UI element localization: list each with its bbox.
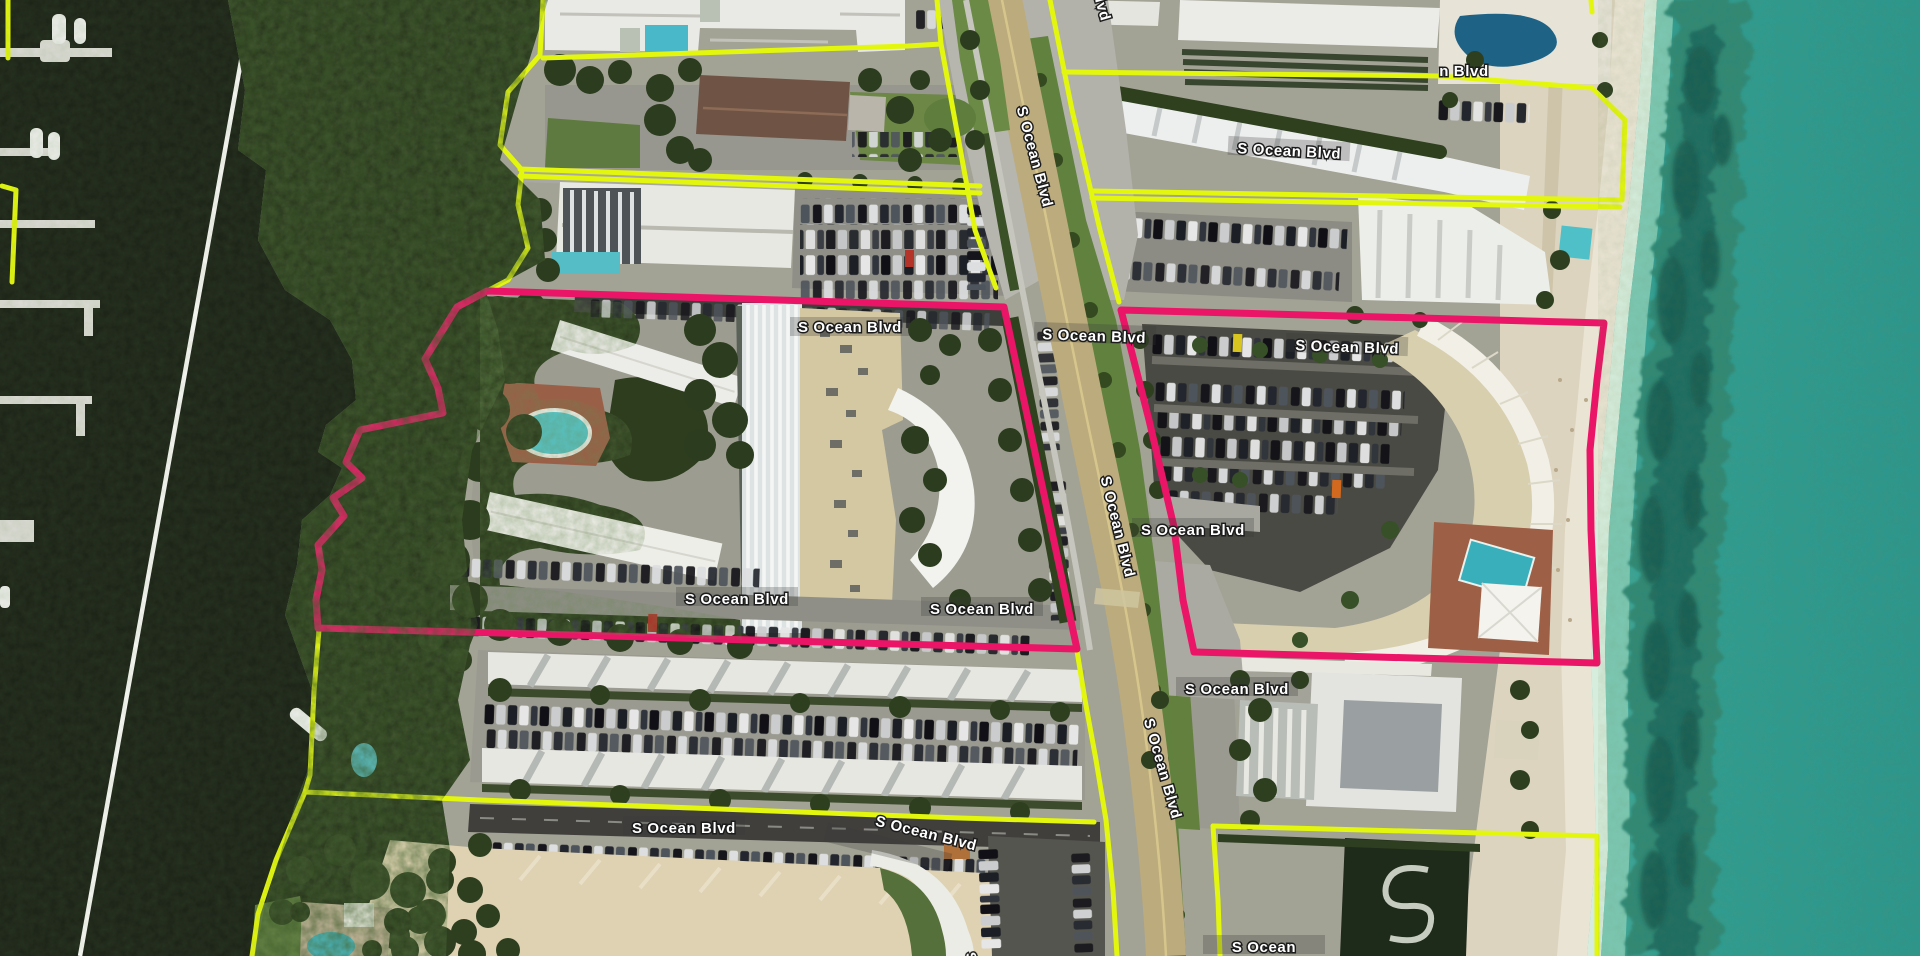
svg-text:S Ocean Blvd: S Ocean Blvd [930,601,1034,618]
svg-text:S Ocean Blvd: S Ocean Blvd [1185,681,1289,698]
svg-text:S Ocean Blvd: S Ocean Blvd [798,319,902,336]
svg-text:S Ocean Blvd: S Ocean Blvd [685,591,789,608]
svg-text:S Ocean Blvd: S Ocean Blvd [1042,326,1146,347]
svg-text:S Ocean Blvd: S Ocean Blvd [1141,522,1245,539]
svg-text:S Ocean Blvd: S Ocean Blvd [1295,337,1399,358]
svg-text:S Ocean Blvd: S Ocean Blvd [632,820,736,837]
svg-text:S Ocean: S Ocean [1232,939,1296,956]
svg-text:n Blvd: n Blvd [1439,63,1488,80]
